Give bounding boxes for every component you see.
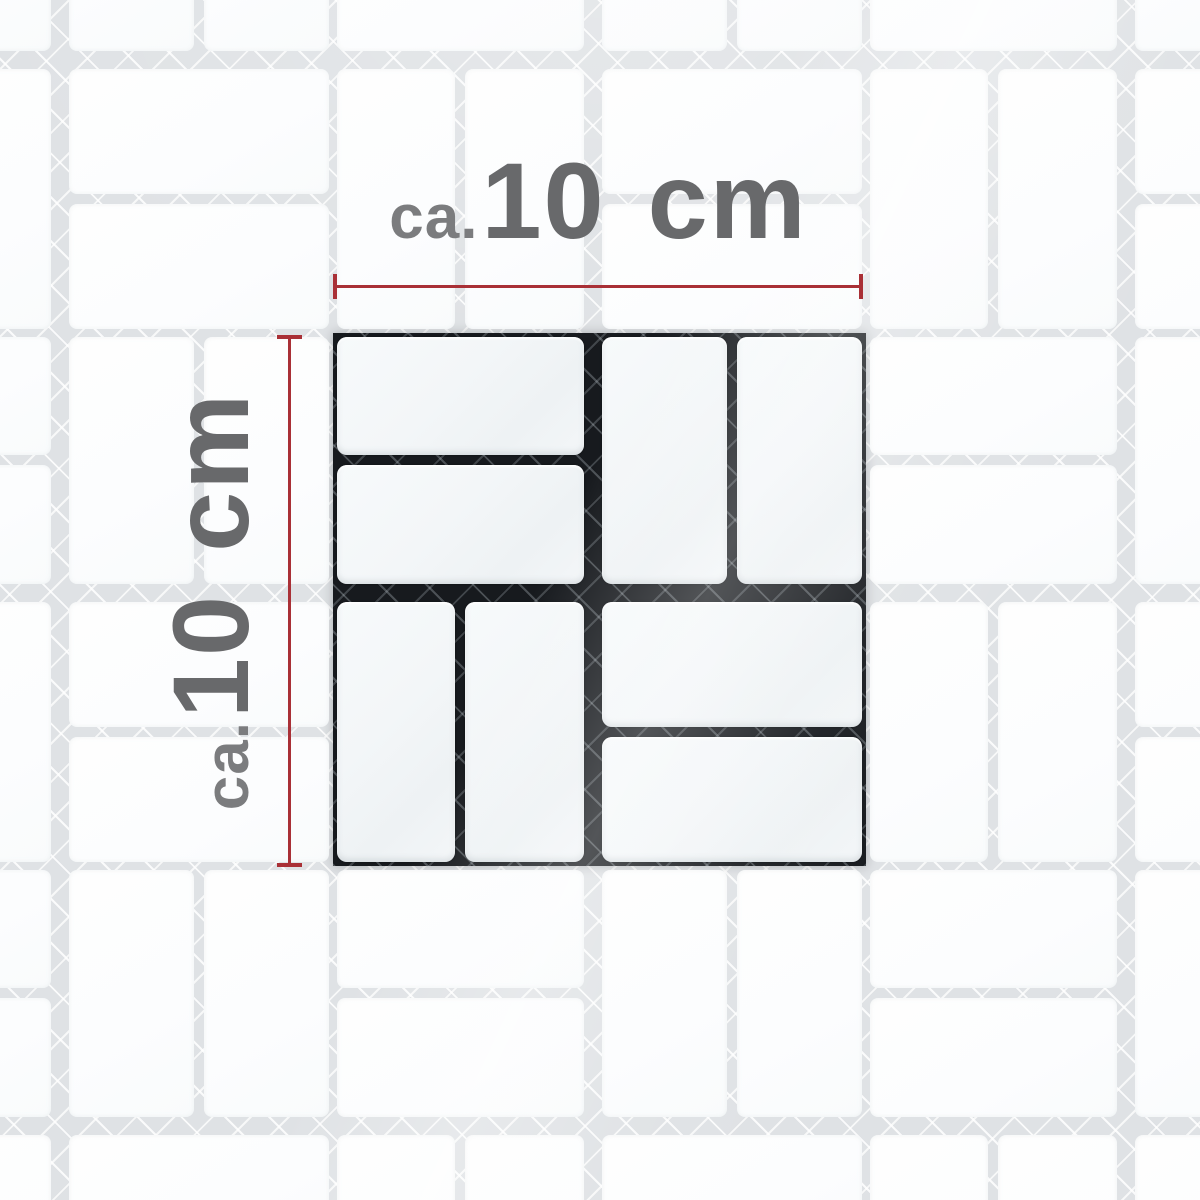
tile-chip — [0, 0, 51, 51]
width-label-value: 10 cm — [481, 147, 807, 255]
tile-chip — [204, 870, 329, 1117]
tile-chip — [602, 337, 727, 584]
tile-chip — [1135, 737, 1200, 862]
tile-chip — [0, 465, 51, 583]
tile-chip — [337, 337, 584, 455]
tile-chip — [998, 602, 1116, 863]
tile-chip — [69, 1135, 330, 1200]
height-measure-line — [288, 335, 291, 867]
tile-chip — [337, 1135, 455, 1200]
tile-chip — [337, 602, 455, 863]
tile-chip — [0, 69, 51, 330]
height-label-value: 10 cm — [157, 392, 265, 718]
width-label: ca. 10 cm — [333, 147, 864, 255]
tile-chip — [998, 1135, 1116, 1200]
tile-chip — [69, 69, 330, 194]
tile-chip — [465, 1135, 583, 1200]
tile-chip — [870, 602, 988, 863]
tile-chip — [0, 1135, 51, 1200]
tile-chip — [337, 0, 584, 51]
height-label: ca. 10 cm — [157, 392, 265, 810]
tile-chip — [0, 602, 51, 863]
tile-chip — [602, 602, 863, 727]
tile-chip — [602, 1135, 863, 1200]
tile-chip — [69, 0, 194, 51]
tile-chip — [69, 870, 194, 1117]
width-measure-line — [333, 285, 863, 288]
tile-chip — [737, 870, 862, 1117]
tile-chip — [0, 998, 51, 1116]
tile-chip — [870, 0, 1117, 51]
tile-dimension-illustration: ca. 10 cm ca. 10 cm — [0, 0, 1200, 1200]
tile-chip — [870, 998, 1117, 1116]
tile-chip — [1135, 602, 1200, 727]
tile-chip — [602, 870, 727, 1117]
tile-chip — [337, 465, 584, 583]
tile-chip — [1135, 870, 1200, 1117]
height-label-prefix: ca. — [197, 721, 259, 810]
width-label-prefix: ca. — [389, 187, 478, 249]
tile-chip — [1135, 204, 1200, 329]
tile-chip — [870, 69, 988, 330]
tile-chip — [337, 870, 584, 988]
tile-chip — [69, 204, 330, 329]
tile-chip — [737, 0, 862, 51]
tile-chip — [465, 602, 583, 863]
tile-chip — [0, 337, 51, 455]
tile-chip — [1135, 1135, 1200, 1200]
tile-chip — [1135, 0, 1200, 51]
tile-chip — [0, 870, 51, 988]
tile-chip — [737, 337, 862, 584]
tile-chip — [998, 69, 1116, 330]
tile-chip — [870, 870, 1117, 988]
tile-chip — [870, 1135, 988, 1200]
tile-chip — [337, 998, 584, 1116]
tile-chip — [204, 0, 329, 51]
tile-chip — [870, 465, 1117, 583]
tile-chip — [1135, 337, 1200, 584]
tile-chip — [602, 0, 727, 51]
tile-chip — [1135, 69, 1200, 194]
tile-chip — [870, 337, 1117, 455]
tile-chip — [602, 737, 863, 862]
